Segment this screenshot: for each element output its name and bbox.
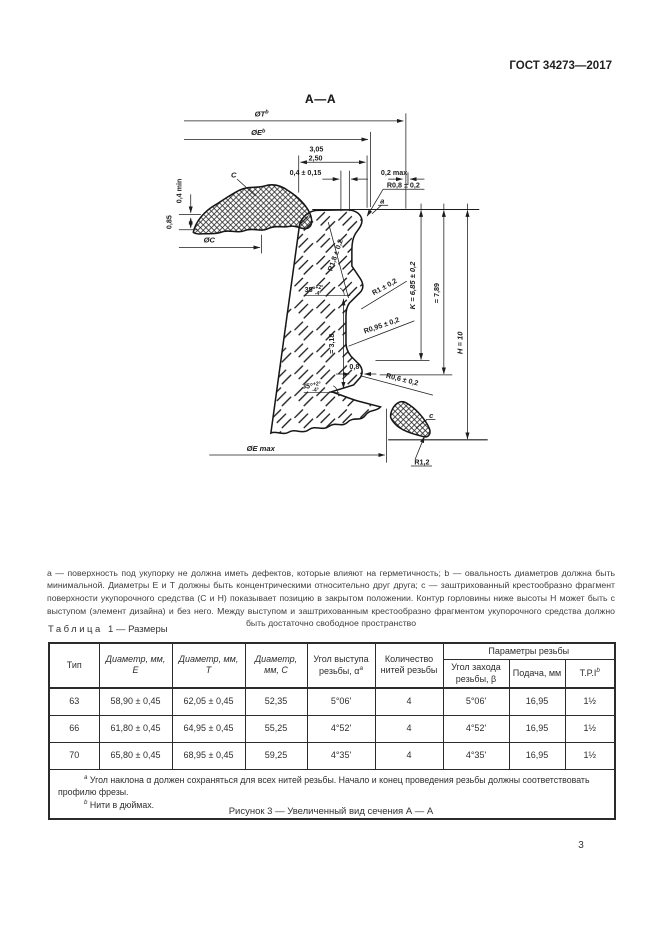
- col-header-dia-e: Диаметр, мм, E: [99, 643, 172, 688]
- dim-r0-95: R0,95 ± 0,2: [363, 316, 401, 336]
- label-cap-c: C: [231, 170, 237, 179]
- drawing-svg: А—А А—А ØTb ØEb 3,05 2,50 0,4 ± 0,15 0,2…: [130, 88, 540, 563]
- table-row: 63 58,90 ± 0,45 62,05 ± 0,45 52,35 5°06'…: [49, 688, 615, 716]
- table-cell: 58,90 ± 0,45: [99, 688, 172, 716]
- dim-0-85: 0,85: [165, 215, 173, 229]
- figure-footnote: a — поверхность под укупорку не должна и…: [47, 567, 615, 630]
- figure-section-aa: А—А А—А ØTb ØEb 3,05 2,50 0,4 ± 0,15 0,2…: [130, 88, 540, 563]
- table-header: Тип Диаметр, мм, E Диаметр, мм, T Диамет…: [49, 643, 615, 688]
- table-cell: 1½: [565, 715, 615, 742]
- dim-dia-e-max: ØE max: [247, 444, 276, 453]
- document-page: ГОСТ 34273—2017: [0, 0, 661, 935]
- col-header-dia-c: Диаметр, мм, C: [245, 643, 307, 688]
- figure-caption: Рисунок 3 — Увеличенный вид сечения А — …: [48, 806, 614, 817]
- col-header-pitch: Подача, мм: [509, 660, 565, 688]
- table-cell: 5°06': [307, 688, 375, 716]
- table-cell: 62,05 ± 0,45: [172, 688, 245, 716]
- dim-dia-e: ØEb: [251, 128, 266, 137]
- col-header-lead-angle: Угол выступа резьбы, αa: [307, 643, 375, 688]
- dim-3-05: 3,05: [309, 145, 323, 153]
- section-title: А—А: [305, 92, 336, 106]
- table-cell: 63: [49, 688, 99, 716]
- page-number: 3: [566, 840, 596, 851]
- col-header-thread-count: Количество нитей резьбы: [375, 643, 443, 688]
- table-cell: 52,35: [245, 688, 307, 716]
- bead-cross-section: [391, 402, 430, 437]
- table-cell: 4: [375, 688, 443, 716]
- col-header-start-angle: Угол захода резьбы, β: [443, 660, 509, 688]
- dim-dia-t: ØTb: [255, 110, 270, 119]
- dim-0-8: 0,8: [349, 363, 359, 371]
- table-title-rest: 1 — Размеры: [108, 624, 168, 635]
- cap-cross-section: [193, 185, 311, 234]
- table-row: 70 65,80 ± 0,45 68,95 ± 0,45 59,25 4°35'…: [49, 742, 615, 769]
- dim-k: K = 6,85 ± 0,2: [408, 261, 417, 310]
- table-cell: 68,95 ± 0,45: [172, 742, 245, 769]
- table-cell: 66: [49, 715, 99, 742]
- table-cell: 16,95: [509, 742, 565, 769]
- dim-2-50: 2,50: [309, 155, 323, 163]
- table-cell: 1½: [565, 742, 615, 769]
- table-cell: 61,80 ± 0,45: [99, 715, 172, 742]
- col-header-dia-t: Диаметр, мм, T: [172, 643, 245, 688]
- table-cell: 4°35': [443, 742, 509, 769]
- col-header-tpi: T.P.Ib: [565, 660, 615, 688]
- dim-r1-2: R1,2: [414, 458, 429, 466]
- label-surface-a: a: [380, 197, 384, 206]
- dim-dia-c: ØC: [204, 235, 216, 244]
- table-cell: 16,95: [509, 715, 565, 742]
- col-header-tip: Тип: [49, 643, 99, 688]
- table-cell: 64,95 ± 0,45: [172, 715, 245, 742]
- dim-r0-6: R0,6 ± 0,2: [385, 372, 419, 388]
- table-cell: 4: [375, 715, 443, 742]
- dim-0-4-015: 0,4 ± 0,15: [290, 169, 322, 177]
- dim-7-89: = 7,89: [433, 283, 441, 303]
- table-cell: 4°52': [443, 715, 509, 742]
- col-header-thread-params: Параметры резьбы: [443, 643, 615, 660]
- table-row: 66 61,80 ± 0,45 64,95 ± 0,45 55,25 4°52'…: [49, 715, 615, 742]
- table-cell: 59,25: [245, 742, 307, 769]
- table-cell: 1½: [565, 688, 615, 716]
- dim-r1: R1 ± 0,2: [371, 277, 399, 297]
- dim-0-4-min: 0,4 min: [175, 179, 183, 204]
- dim-0-2-max: 0,2 max: [381, 169, 407, 177]
- table-cell: 4°35': [307, 742, 375, 769]
- table-cell: 65,80 ± 0,45: [99, 742, 172, 769]
- standard-code: ГОСТ 34273—2017: [48, 60, 612, 72]
- table-cell: 4: [375, 742, 443, 769]
- label-bead-c: c: [429, 411, 434, 420]
- table-cell: 16,95: [509, 688, 565, 716]
- dimensions-table: Тип Диаметр, мм, E Диаметр, мм, T Диамет…: [48, 642, 616, 820]
- table-cell: 5°06': [443, 688, 509, 716]
- dim-r0-8: R0,8 ± 0,2: [387, 182, 420, 190]
- table-title-word: Таблица: [48, 624, 103, 635]
- table-cell: 4°52': [307, 715, 375, 742]
- dim-h: H = 10: [455, 331, 464, 354]
- table-cell: 70: [49, 742, 99, 769]
- table-footnote-a: a Угол наклона α должен сохраняться для …: [58, 774, 606, 799]
- dim-3-18: = 3,18: [328, 334, 336, 354]
- table-title: Таблица 1 — Размеры: [48, 624, 168, 635]
- glass-neck-cross-section: [271, 210, 381, 434]
- table-cell: 55,25: [245, 715, 307, 742]
